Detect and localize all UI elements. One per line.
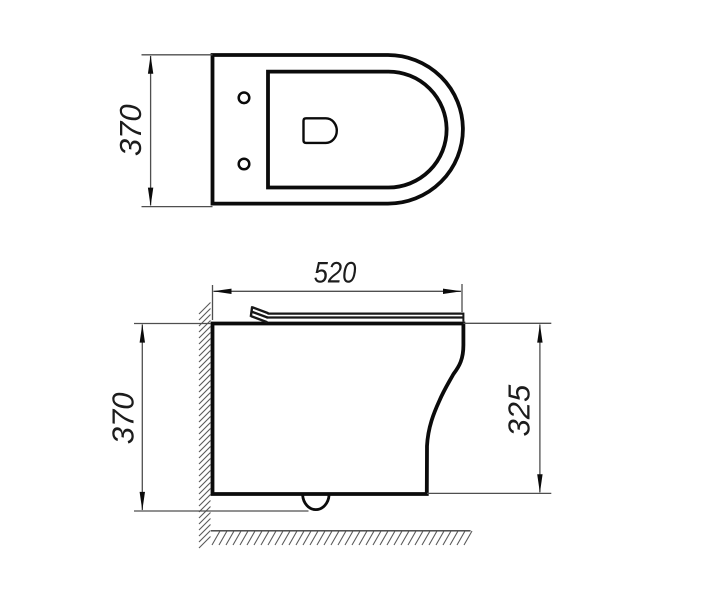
svg-text:370: 370 (106, 393, 141, 445)
svg-text:370: 370 (113, 104, 148, 156)
svg-text:520: 520 (314, 257, 357, 290)
svg-text:325: 325 (502, 384, 537, 436)
